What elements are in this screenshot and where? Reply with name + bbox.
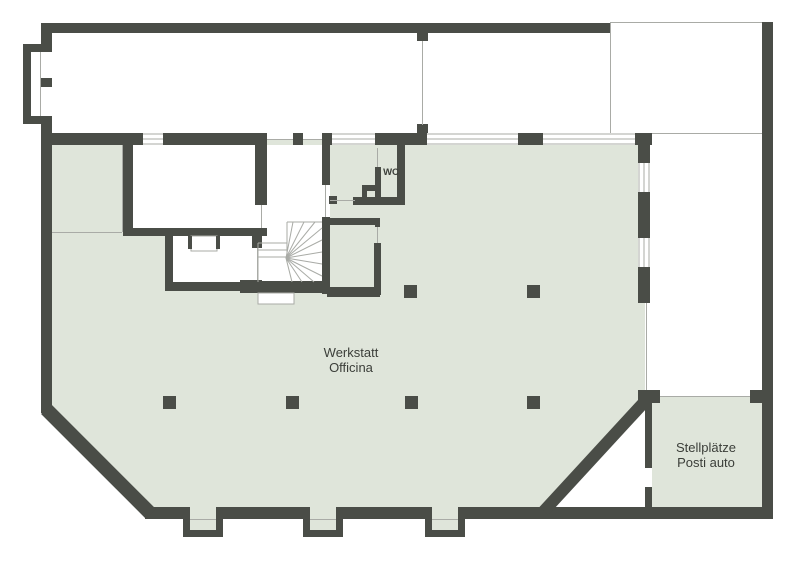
wc-label: WC bbox=[383, 168, 399, 178]
workshop-label-it: Officina bbox=[324, 360, 379, 375]
parking-label-de: Stellplätze bbox=[676, 440, 736, 455]
parking-label-it: Posti auto bbox=[676, 455, 736, 470]
upper-rooms-partitions bbox=[417, 22, 762, 134]
floor-plan-drawing bbox=[0, 0, 800, 562]
facade-wall-band bbox=[52, 133, 652, 145]
workshop-label-de: Werkstatt bbox=[324, 345, 379, 360]
parking-label: Stellplätze Posti auto bbox=[676, 440, 736, 470]
workshop-label: Werkstatt Officina bbox=[324, 345, 379, 375]
floor-plan: Werkstatt Officina Stellplätze Posti aut… bbox=[0, 0, 800, 562]
